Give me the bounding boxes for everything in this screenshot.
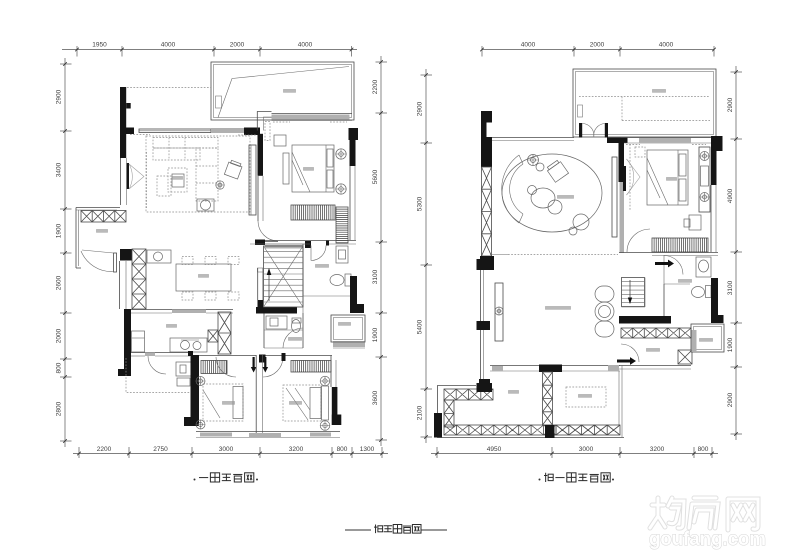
svg-text:2900: 2900: [56, 89, 63, 104]
svg-text:2000: 2000: [230, 42, 245, 49]
svg-text:3100: 3100: [372, 269, 379, 284]
svg-text:2000: 2000: [56, 328, 63, 343]
svg-text:800: 800: [698, 446, 709, 453]
svg-text:2200: 2200: [97, 446, 112, 453]
svg-text:2900: 2900: [417, 101, 424, 116]
svg-text:1900: 1900: [372, 327, 379, 342]
svg-text:4950: 4950: [487, 446, 502, 453]
svg-text:3400: 3400: [56, 162, 63, 177]
svg-text:3200: 3200: [289, 446, 304, 453]
svg-text:800: 800: [337, 446, 348, 453]
svg-text:2900: 2900: [727, 392, 734, 407]
svg-text:2100: 2100: [417, 405, 424, 420]
svg-text:800: 800: [56, 362, 63, 373]
svg-text:2600: 2600: [56, 275, 63, 290]
svg-text:5400: 5400: [417, 319, 424, 334]
svg-text:3100: 3100: [727, 280, 734, 295]
svg-text:1900: 1900: [727, 337, 734, 352]
svg-text:3200: 3200: [650, 446, 665, 453]
svg-text:goufang.com: goufang.com: [649, 529, 766, 550]
svg-text:4000: 4000: [521, 42, 536, 49]
svg-text:5300: 5300: [417, 196, 424, 211]
svg-text:2200: 2200: [372, 79, 379, 94]
svg-text:2800: 2800: [56, 401, 63, 416]
svg-text:3000: 3000: [219, 446, 234, 453]
svg-text:1900: 1900: [56, 223, 63, 238]
svg-text:4000: 4000: [161, 42, 176, 49]
svg-text:2750: 2750: [153, 446, 168, 453]
svg-text:4000: 4000: [659, 42, 674, 49]
svg-text:4000: 4000: [298, 42, 313, 49]
svg-text:1300: 1300: [360, 446, 375, 453]
svg-text:1950: 1950: [92, 42, 107, 49]
svg-text:5600: 5600: [372, 169, 379, 184]
svg-text:2900: 2900: [727, 97, 734, 112]
svg-text:3000: 3000: [579, 446, 594, 453]
svg-text:2000: 2000: [590, 42, 605, 49]
svg-text:4900: 4900: [727, 188, 734, 203]
svg-text:3600: 3600: [372, 390, 379, 405]
